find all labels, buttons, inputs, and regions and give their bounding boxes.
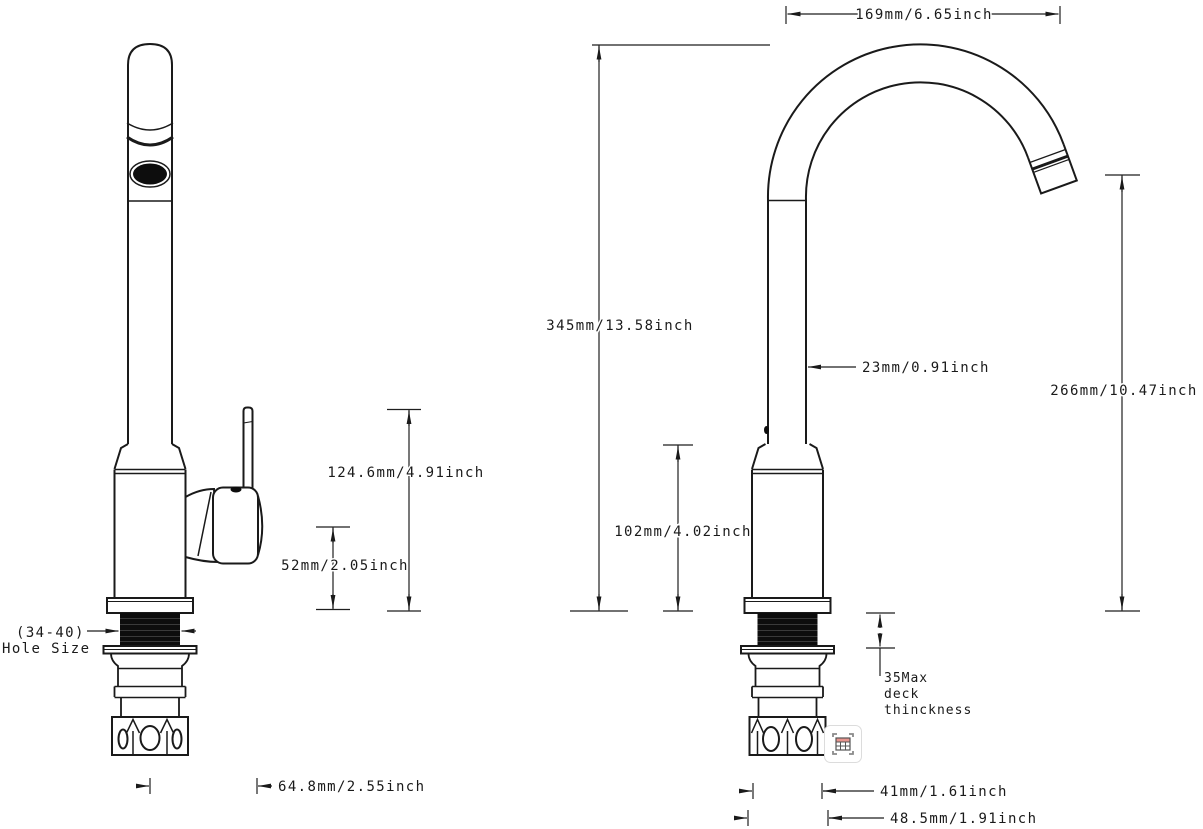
faucet-column — [128, 44, 172, 444]
dim-base-width: 48.5mm/1.91inch — [735, 810, 1037, 827]
left-faucet-figure — [104, 44, 263, 755]
dim-nut-width-label: 41mm/1.61inch — [880, 784, 1008, 800]
dim-outlet-height: 266mm/10.47inch — [1050, 175, 1197, 611]
right-faucet-figure — [741, 44, 1077, 755]
dim-nut-width: 41mm/1.61inch — [740, 783, 1008, 800]
hole-size-label: Hole Size — [2, 641, 90, 657]
dim-spout-width: 169mm/6.65inch — [786, 6, 1060, 24]
deck-note-line3: thinckness — [884, 703, 972, 718]
deck-note-line2: deck — [884, 687, 919, 702]
dim-body-height: 102mm/4.02inch — [614, 445, 752, 611]
dim-spout-width-label: 169mm/6.65inch — [855, 7, 993, 23]
dim-spout-reach: 64.8mm/2.55inch — [137, 778, 425, 795]
handle-lever — [244, 408, 253, 495]
dim-tube-diameter-label: 23mm/0.91inch — [862, 360, 990, 376]
hole-size-value: (34-40) — [16, 625, 85, 641]
dim-tube-diameter: 23mm/0.91inch — [808, 360, 990, 376]
handle-cap — [213, 488, 258, 564]
dim-spout-reach-label: 64.8mm/2.55inch — [278, 779, 425, 795]
dimensions: 169mm/6.65inch 345mm/13.58inch 102mm/4.0… — [2, 6, 1198, 827]
gooseneck-outer — [768, 44, 1064, 200]
gooseneck-inner — [806, 82, 1028, 200]
technical-drawing: 169mm/6.65inch 345mm/13.58inch 102mm/4.0… — [0, 0, 1203, 829]
dim-outlet-height-label: 266mm/10.47inch — [1050, 383, 1197, 399]
dim-deck-thickness: 35Max deck thinckness — [866, 613, 972, 718]
dim-overall-height-label: 345mm/13.58inch — [546, 318, 693, 334]
deck-note-line1: 35Max — [884, 671, 928, 686]
dim-body-height-label: 102mm/4.02inch — [614, 524, 752, 540]
dim-valve-height-label: 52mm/2.05inch — [281, 558, 409, 574]
dim-valve-height: 52mm/2.05inch — [281, 527, 409, 610]
dim-handle-height-label: 124.6mm/4.91inch — [327, 465, 484, 481]
riser-tube — [768, 200, 806, 444]
dim-base-width-label: 48.5mm/1.91inch — [890, 811, 1037, 827]
dim-handle-height: 124.6mm/4.91inch — [327, 410, 484, 612]
spout-outlet — [133, 164, 167, 185]
set-screw — [764, 426, 769, 434]
handle-assembly — [186, 408, 263, 564]
table-capture-icon[interactable] — [825, 726, 862, 763]
